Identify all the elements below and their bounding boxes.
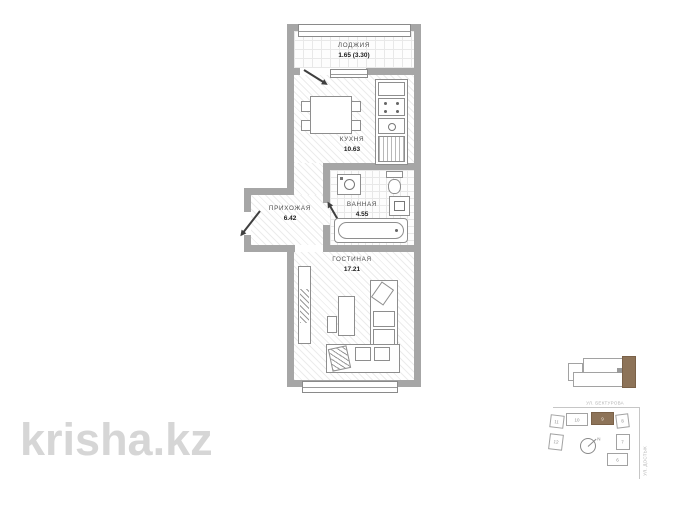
building-10: 10 xyxy=(566,413,588,426)
kitchen-sink xyxy=(378,118,405,134)
building-number: 10 xyxy=(574,417,579,422)
building-7: 7 xyxy=(616,434,630,450)
kitchen-chair xyxy=(301,120,311,131)
stove xyxy=(378,98,405,116)
apartment-position-highlight xyxy=(622,356,636,388)
building-core xyxy=(617,368,622,373)
kitchen-chair xyxy=(351,101,361,112)
toilet-bowl xyxy=(388,179,401,194)
loggia-label: ЛОДЖИЯ 1.65 (3.30) xyxy=(274,40,434,60)
street-label-right: УЛ. ДОСТЫК xyxy=(643,446,648,476)
bathroom-label: ВАННАЯ 4.55 xyxy=(282,199,442,219)
room-area: 17.21 xyxy=(294,265,409,272)
building-outline xyxy=(573,372,623,387)
kitchen-chair xyxy=(351,120,361,131)
building-number: 9 xyxy=(601,416,604,421)
room-name: ГОСТИНАЯ xyxy=(296,256,408,263)
room-name: ЛОДЖИЯ xyxy=(298,42,410,49)
sofa-cushion xyxy=(355,347,371,361)
living-room-label: ГОСТИНАЯ 17.21 xyxy=(272,254,432,274)
wall-loggia-divider-right xyxy=(366,68,421,75)
corridor-floor xyxy=(294,163,323,195)
wall-living-top-right xyxy=(323,245,421,252)
balcony-window-sill xyxy=(330,69,368,78)
washing-machine xyxy=(337,174,361,195)
toilet-tank xyxy=(386,171,403,178)
loggia-window xyxy=(298,24,411,37)
building-11: 11 xyxy=(549,414,564,429)
sofa-bottom xyxy=(326,344,400,373)
compass-icon xyxy=(580,438,596,454)
krisha-watermark: krisha.kz xyxy=(20,414,213,466)
refrigerator xyxy=(378,82,405,96)
compass-north-label: N xyxy=(595,437,603,442)
building-number: 12 xyxy=(553,439,559,445)
sofa-pillow xyxy=(328,345,351,371)
floor-plan-image: { "watermark": { "text": "krisha.kz" }, … xyxy=(0,0,700,515)
room-name: КУХНЯ xyxy=(296,136,408,143)
apartment-floor-plan: ЛОДЖИЯ 1.65 (3.30) КУХНЯ 10.63 ПРИХОЖАЯ … xyxy=(238,24,423,399)
street-label-top: УЛ. БЕКТУРОВА xyxy=(580,401,630,406)
wall-hallway-top xyxy=(244,188,294,195)
ottoman xyxy=(327,316,337,333)
building-number: 7 xyxy=(622,440,625,445)
living-room-window xyxy=(302,381,398,393)
sofa-cushion xyxy=(374,347,390,361)
room-area: 4.55 xyxy=(304,210,419,217)
site-plan: УЛ. БЕКТУРОВА 11 10 9 8 12 7 6 N УЛ. ДОС… xyxy=(545,352,680,484)
building-number: 11 xyxy=(554,419,559,425)
kitchen-chair xyxy=(301,101,311,112)
room-area: 1.65 (3.30) xyxy=(296,51,411,58)
building-number: 8 xyxy=(621,418,624,423)
wall-loggia-divider-left xyxy=(287,68,300,75)
kitchen-label: КУХНЯ 10.63 xyxy=(272,134,432,154)
building-number: 6 xyxy=(616,457,619,462)
building-12: 12 xyxy=(548,433,564,451)
room-area: 10.63 xyxy=(294,145,409,152)
wardrobe xyxy=(298,266,311,344)
living-table xyxy=(338,296,355,336)
building-9-highlighted: 9 xyxy=(591,412,614,425)
sofa-cushion xyxy=(373,311,395,327)
wardrobe-mirror xyxy=(300,289,309,323)
sofa-right xyxy=(370,280,398,348)
sofa-pillow xyxy=(371,281,394,305)
room-name: ВАННАЯ xyxy=(306,201,418,208)
kitchen-table xyxy=(310,96,352,134)
building-6: 6 xyxy=(607,453,628,466)
building-8: 8 xyxy=(615,413,630,428)
